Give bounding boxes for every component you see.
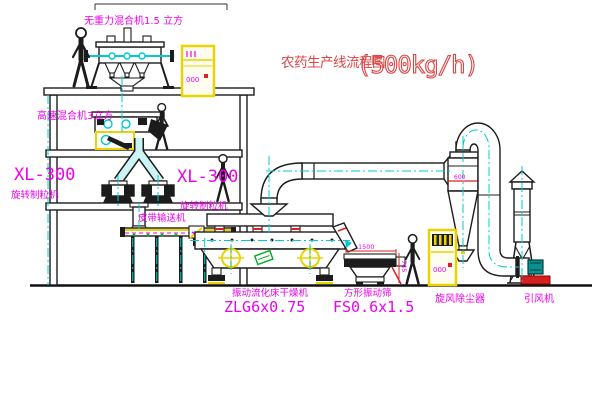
cabinet2-red-button <box>448 263 452 267</box>
label-gravity-mixer: 无重力混合机1.5 立方 <box>84 14 183 27</box>
flow-diagram: 000 <box>0 0 600 403</box>
label-granulator-model-left: XL-300 <box>14 165 75 185</box>
diagram-title-capacity: (500kg/h) <box>357 51 478 79</box>
dim-sieve-height: 745 <box>400 260 408 272</box>
label-belt-conveyor: 皮带输送机 <box>138 212 186 224</box>
top-dimension-line <box>95 4 227 10</box>
diagram-svg: 000 <box>0 0 600 403</box>
label-granulator-name-center: 旋转制粒机 <box>180 200 228 212</box>
label-cyclone: 旋风除尘器 <box>435 292 485 305</box>
control-cabinet-2: 000 <box>429 230 456 285</box>
label-fan: 引风机 <box>524 292 554 305</box>
draft-fan <box>516 256 550 284</box>
label-sieve-model: FS0.6x1.5 <box>333 298 414 316</box>
label-granulator-model-center: XL-300 <box>177 167 238 187</box>
cabinet1-red-button <box>204 74 208 78</box>
fluid-bed-dryer <box>195 214 345 283</box>
label-high-speed-mixer: 高速混合机3立方 <box>37 109 113 122</box>
dim-sieve-length: 1500 <box>358 243 375 251</box>
fan-base <box>521 276 550 284</box>
control-cabinet-1: 000 <box>182 46 214 96</box>
gravity-mixer <box>84 28 174 91</box>
exhaust-duct <box>251 156 450 216</box>
vibrating-sieve <box>333 223 405 285</box>
cabinet1-display: 000 <box>186 76 199 84</box>
dim-cyclone: 600 <box>454 174 466 181</box>
label-dryer-model: ZLG6x0.75 <box>224 298 305 316</box>
label-granulator-name-left: 旋转制粒机 <box>11 189 59 201</box>
cabinet2-display: 000 <box>433 266 446 274</box>
